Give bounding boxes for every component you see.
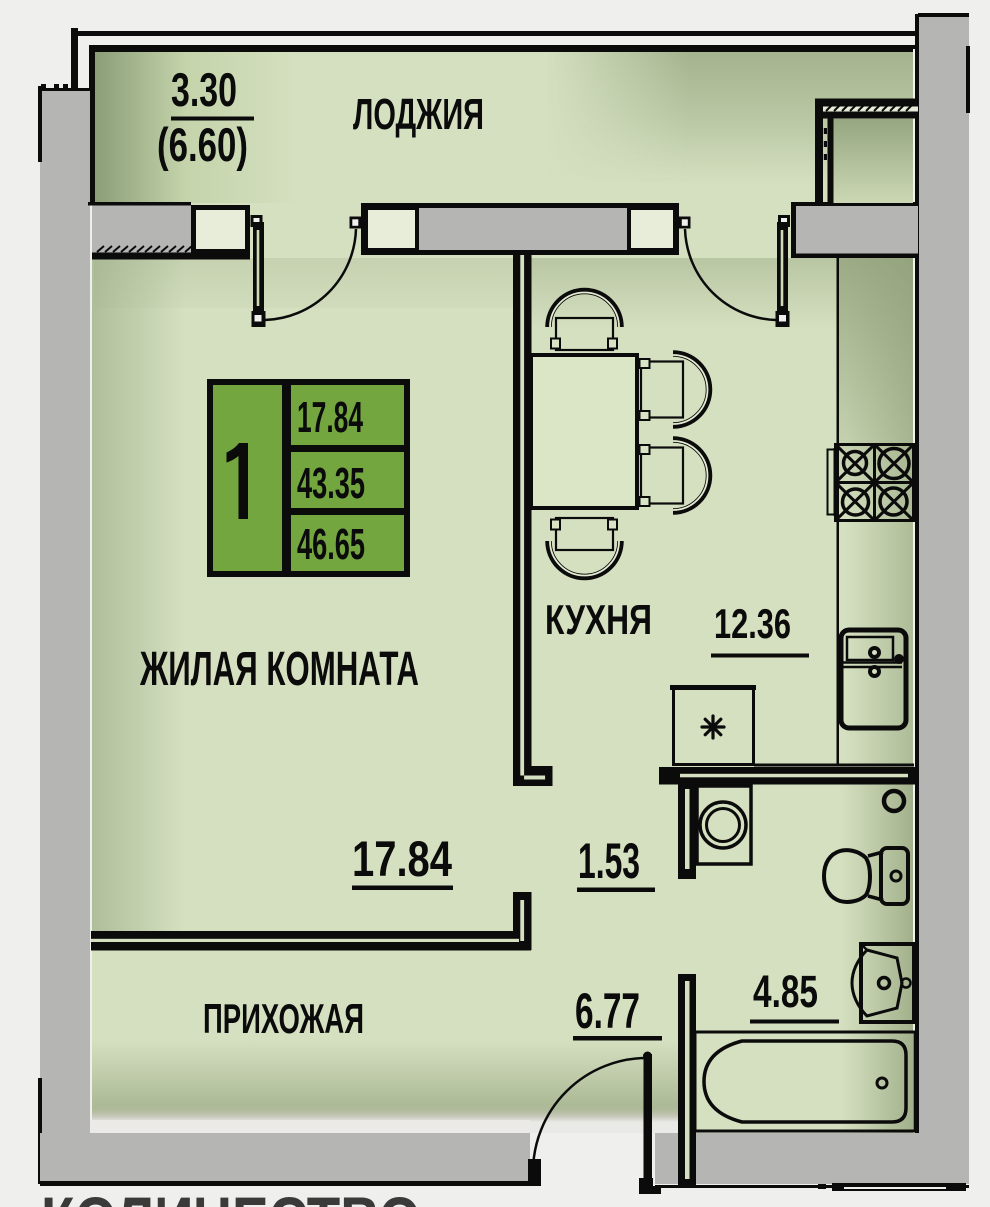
svg-text:43.35: 43.35 <box>297 459 365 508</box>
svg-text:ЖИЛАЯ КОМНАТА: ЖИЛАЯ КОМНАТА <box>139 643 419 696</box>
svg-text:6.77: 6.77 <box>575 983 640 1039</box>
svg-text:46.65: 46.65 <box>297 520 365 569</box>
svg-text:КОЛИЧЕСТВО: КОЛИЧЕСТВО <box>41 1183 421 1207</box>
svg-text:ПРИХОЖАЯ: ПРИХОЖАЯ <box>203 995 364 1042</box>
svg-text:4.85: 4.85 <box>753 966 818 1017</box>
svg-text:17.84: 17.84 <box>352 831 452 887</box>
svg-text:КУХНЯ: КУХНЯ <box>545 596 652 643</box>
svg-text:ЛОДЖИЯ: ЛОДЖИЯ <box>353 90 484 139</box>
svg-text:3.30: 3.30 <box>171 63 237 116</box>
svg-text:12.36: 12.36 <box>714 600 791 647</box>
svg-text:17.84: 17.84 <box>297 393 363 442</box>
svg-text:1.53: 1.53 <box>578 833 640 889</box>
svg-text:(6.60): (6.60) <box>157 118 248 171</box>
